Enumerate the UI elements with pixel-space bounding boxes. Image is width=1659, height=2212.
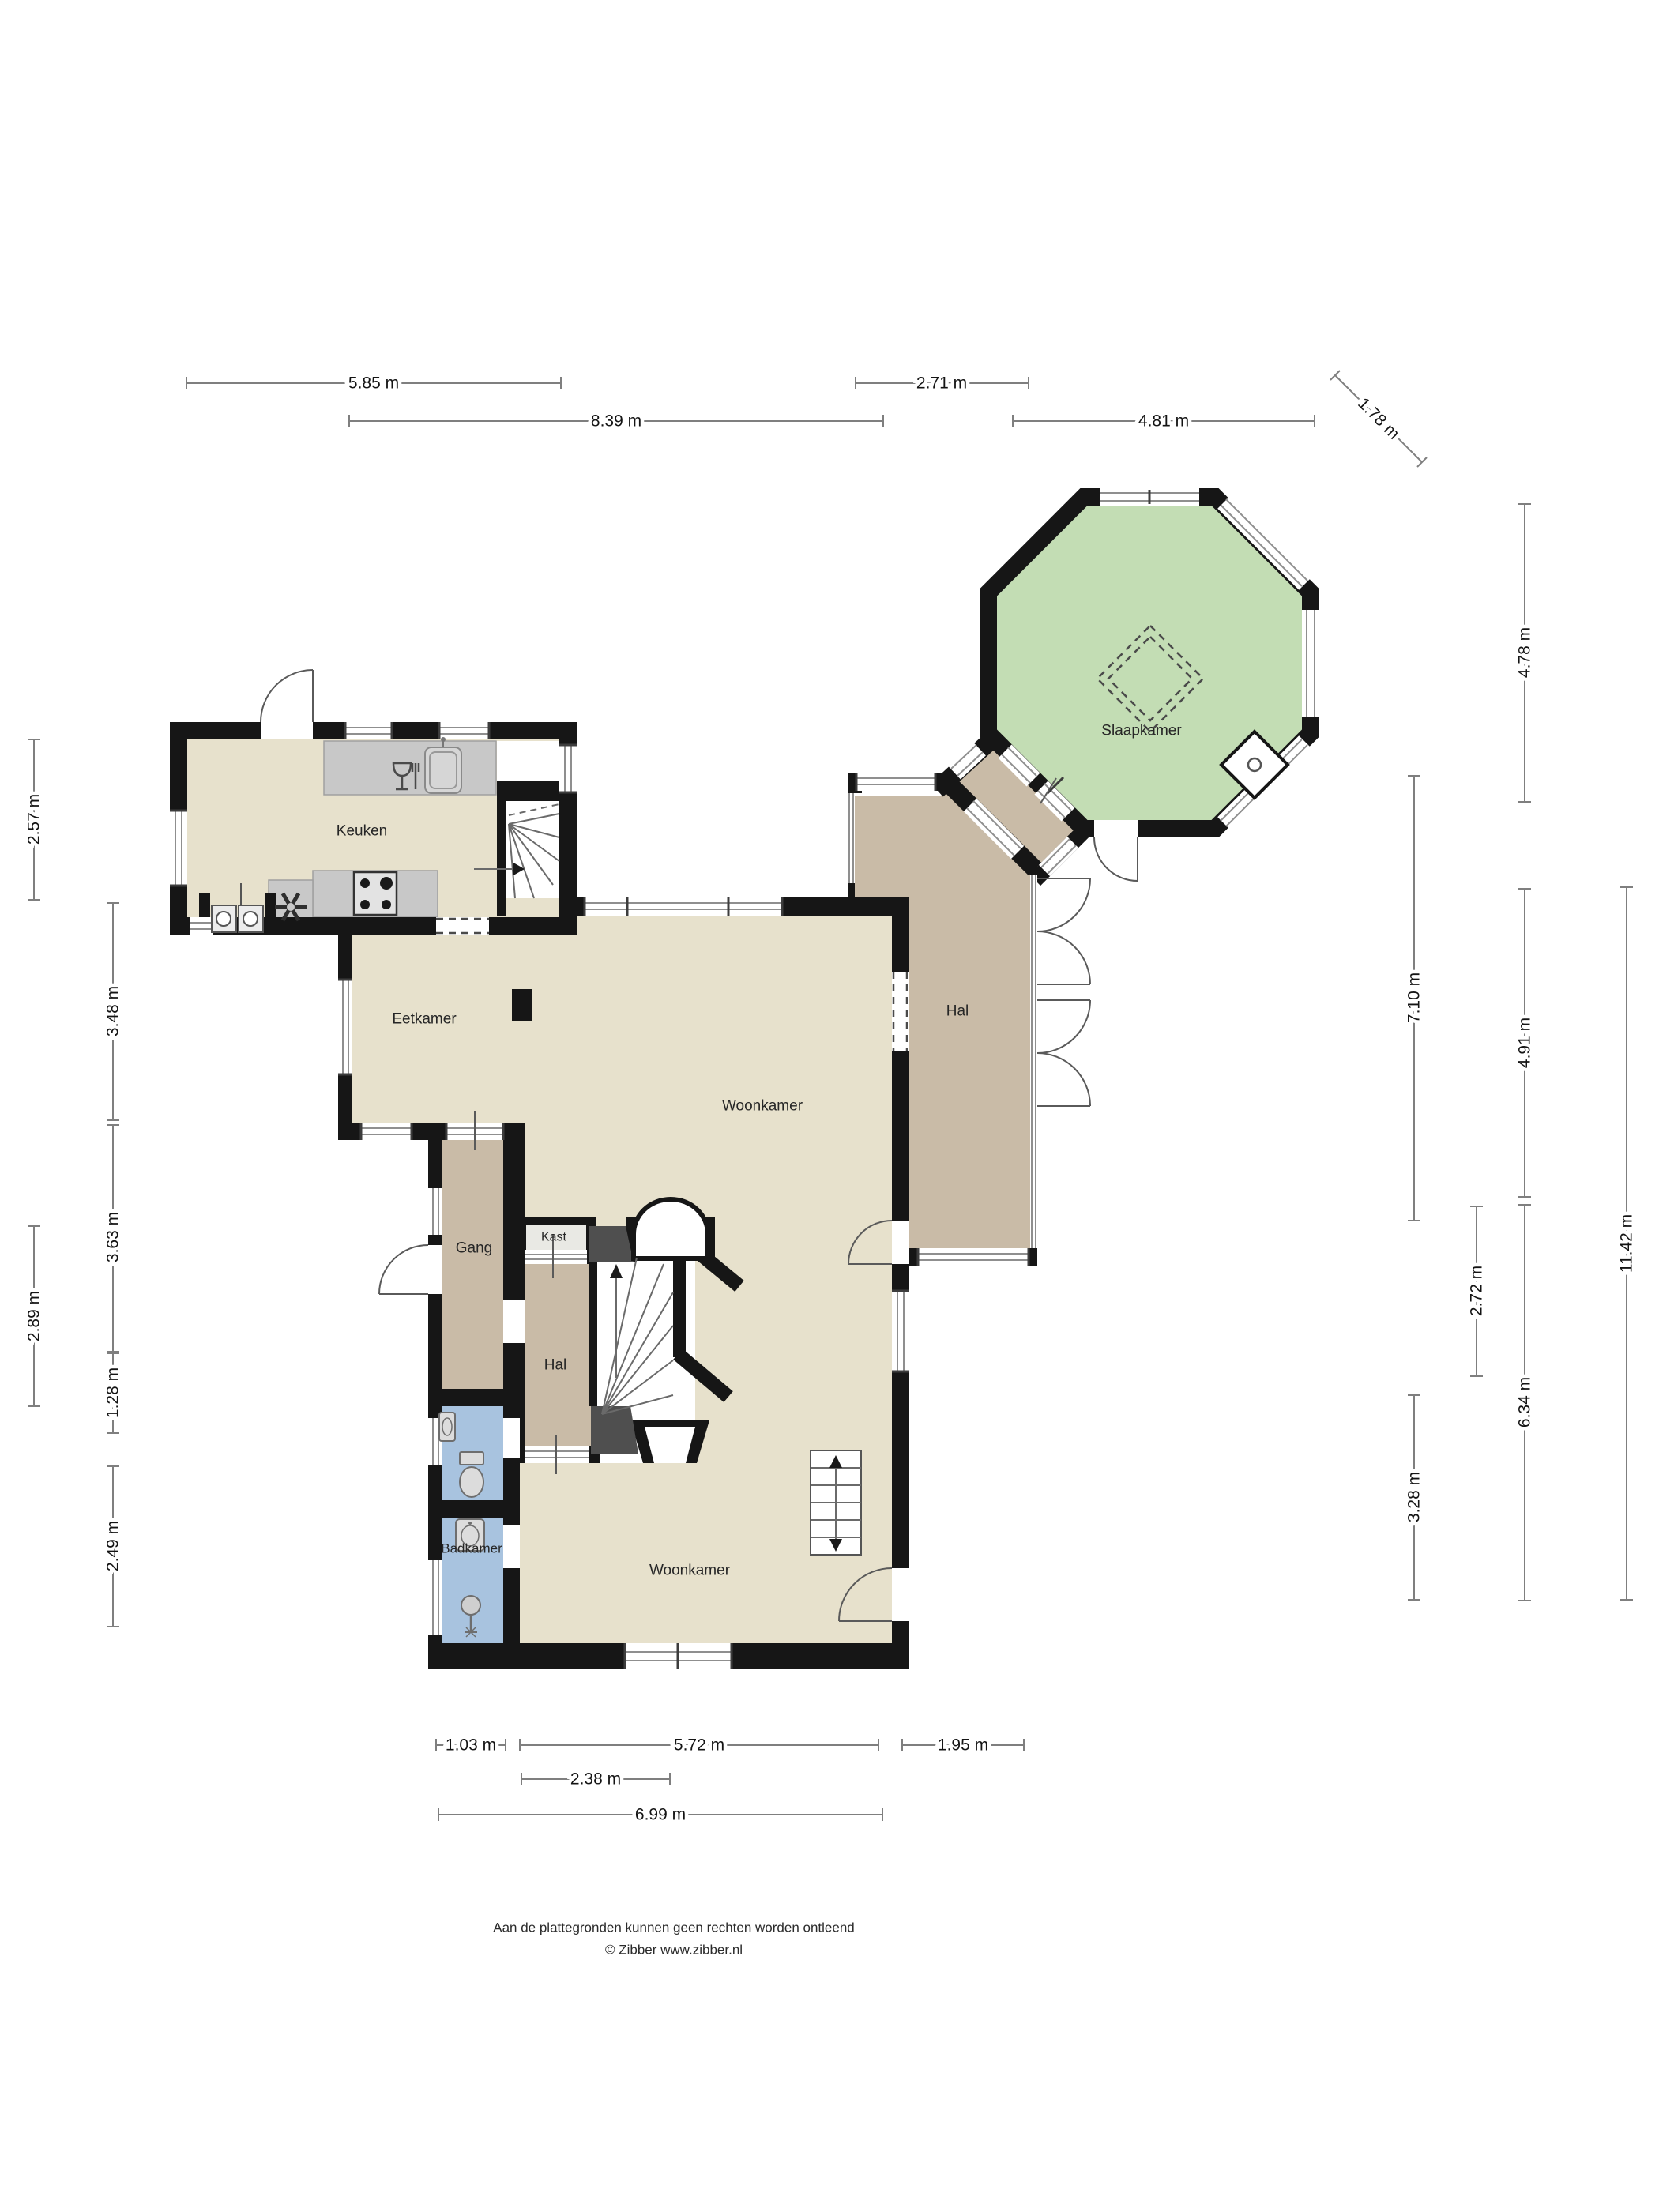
svg-text:2.71 m: 2.71 m (916, 374, 967, 393)
gang-floor (442, 1140, 503, 1389)
window (1307, 610, 1315, 717)
svg-text:1.03 m: 1.03 m (446, 1736, 496, 1755)
window (190, 917, 213, 935)
room-label-kast: Kast (541, 1231, 567, 1244)
window (428, 1188, 442, 1235)
window (170, 811, 187, 886)
stove-icon (354, 872, 397, 915)
dim-right-1: 4.78 m (1516, 504, 1534, 802)
window (345, 722, 392, 739)
room-label-hal-boven: Hal (946, 1003, 969, 1020)
dim-bottom-4: 2.38 m (521, 1770, 670, 1789)
small-basin-icon (439, 1413, 455, 1441)
svg-text:1.95 m: 1.95 m (938, 1736, 988, 1755)
window (848, 793, 855, 883)
room-label-woonkamer-boven: Woonkamer (722, 1098, 803, 1115)
woonkamer-column-floor (695, 1226, 892, 1463)
entry-door-keuken (261, 670, 313, 739)
window (918, 1248, 1029, 1266)
svg-text:6.34 m: 6.34 m (1516, 1377, 1534, 1428)
window (525, 1250, 587, 1264)
svg-text:4.78 m: 4.78 m (1516, 627, 1534, 678)
dim-bottom-2: 5.72 m (520, 1736, 878, 1755)
door-gang-hal (503, 1300, 525, 1343)
woonkamer-boven-floor (559, 916, 892, 1123)
opening-woonkamer-hal (892, 972, 909, 1051)
floor-plan-svg: Keuken Eetkamer Woonkamer Hal Slaapkamer… (0, 0, 1659, 2212)
window (625, 1643, 732, 1669)
french-doors-hal (1037, 878, 1090, 1106)
stairs-straight (811, 1450, 861, 1555)
svg-text:8.39 m: 8.39 m (591, 412, 641, 431)
room-label-badkamer: Badkamer (441, 1541, 502, 1556)
hal-beneden-floor (519, 1264, 592, 1446)
disclaimer-text: Aan de plattegronden kunnen geen rechten… (493, 1920, 854, 1935)
opening-keuken-eetkamer (436, 917, 489, 935)
room-fills (187, 497, 1311, 1643)
dim-right-3: 4.91 m (1516, 889, 1534, 1197)
svg-text:2.72 m: 2.72 m (1468, 1266, 1486, 1316)
svg-text:3.48 m: 3.48 m (104, 986, 122, 1036)
svg-text:2.49 m: 2.49 m (104, 1521, 122, 1571)
svg-text:11.42 m: 11.42 m (1618, 1214, 1636, 1273)
dim-right-4: 2.72 m (1468, 1206, 1486, 1376)
dim-left-1: 2.57 m (25, 739, 43, 900)
window (856, 773, 935, 791)
svg-text:1.78 m: 1.78 m (1354, 394, 1403, 443)
dim-top-3: 8.39 m (349, 412, 883, 431)
svg-text:5.85 m: 5.85 m (348, 374, 399, 393)
dim-left-3: 3.63 m (104, 1125, 122, 1352)
room-label-hal-beneden: Hal (544, 1357, 567, 1374)
hearth-upper (634, 1199, 708, 1258)
window (428, 1560, 442, 1635)
dim-bottom-1: 1.03 m (436, 1736, 506, 1755)
dim-right-6: 11.42 m (1618, 887, 1636, 1600)
window (1100, 490, 1199, 504)
toilet-icon (460, 1452, 483, 1497)
dim-right-2: 7.10 m (1405, 776, 1424, 1221)
column (512, 989, 532, 1021)
window (338, 980, 352, 1074)
entry-door-gang (379, 1245, 442, 1294)
window (585, 897, 782, 916)
glass-wall (1030, 875, 1037, 1248)
dim-top-2: 2.71 m (856, 374, 1029, 393)
window (361, 1123, 412, 1140)
woonkamer-mid-floor (525, 1123, 892, 1226)
room-label-eetkamer: Eetkamer (392, 1011, 457, 1028)
room-label-keuken: Keuken (337, 823, 387, 840)
copyright-text: © Zibber www.zibber.nl (605, 1943, 743, 1958)
dryer-icon (239, 905, 263, 932)
door-toilet (503, 1418, 520, 1458)
dim-bottom-5: 6.99 m (438, 1806, 882, 1824)
dim-left-6: 2.49 m (104, 1466, 122, 1627)
window (559, 745, 577, 792)
svg-text:7.10 m: 7.10 m (1405, 972, 1424, 1023)
room-label-gang: Gang (456, 1240, 492, 1257)
dim-top-1: 5.85 m (186, 374, 561, 393)
footer: Aan de plattegronden kunnen geen rechten… (493, 1920, 854, 1958)
window (892, 1291, 909, 1371)
svg-text:5.72 m: 5.72 m (674, 1736, 724, 1755)
door-badkamer (503, 1525, 520, 1568)
room-label-slaapkamer: Slaapkamer (1101, 723, 1182, 739)
dim-right-5: 6.34 m (1516, 1205, 1534, 1601)
dim-left-2: 3.48 m (104, 903, 122, 1120)
dim-right-7: 3.28 m (1405, 1395, 1424, 1600)
svg-text:1.28 m: 1.28 m (104, 1367, 122, 1418)
stair-landing (497, 741, 562, 781)
svg-text:2.38 m: 2.38 m (570, 1770, 621, 1789)
window (439, 722, 489, 739)
floor-plan-page: Keuken Eetkamer Woonkamer Hal Slaapkamer… (0, 0, 1659, 2212)
svg-text:4.81 m: 4.81 m (1138, 412, 1189, 431)
dim-bottom-3: 1.95 m (902, 1736, 1024, 1755)
washer-icon (212, 905, 236, 932)
dim-left-5: 1.28 m (104, 1353, 122, 1433)
svg-text:3.28 m: 3.28 m (1405, 1472, 1424, 1522)
door-slaapkamer-exterior (1094, 820, 1138, 881)
svg-text:3.63 m: 3.63 m (104, 1212, 122, 1262)
svg-text:2.89 m: 2.89 m (25, 1291, 43, 1341)
dim-top-4: 4.81 m (1013, 412, 1315, 431)
svg-text:6.99 m: 6.99 m (635, 1806, 686, 1824)
dim-left-4: 2.89 m (25, 1226, 43, 1406)
dim-diag: 1.78 m (1330, 371, 1427, 467)
room-label-woonkamer-beneden: Woonkamer (649, 1563, 731, 1579)
svg-text:4.91 m: 4.91 m (1516, 1018, 1534, 1068)
svg-text:2.57 m: 2.57 m (25, 794, 43, 845)
